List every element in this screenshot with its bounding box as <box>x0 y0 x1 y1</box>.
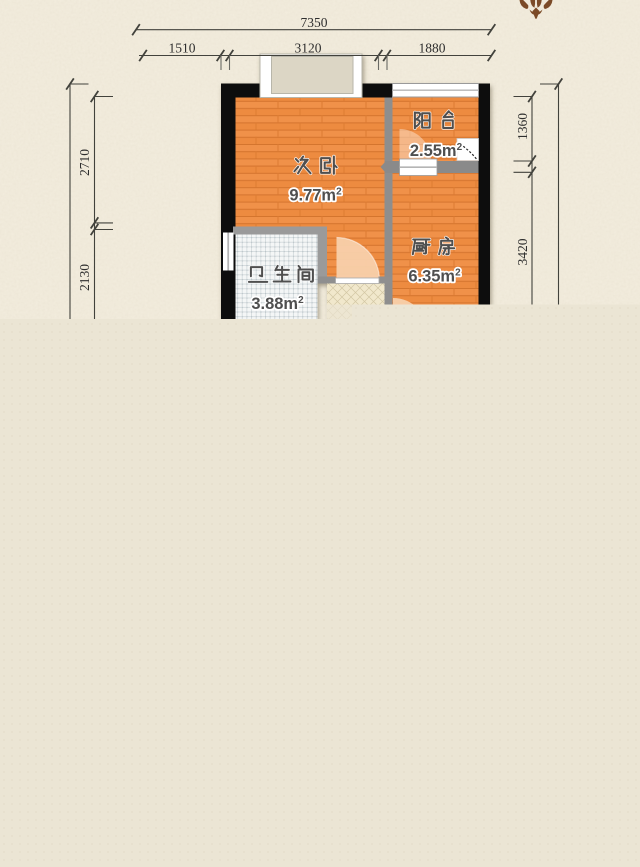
svg-text:3120: 3120 <box>295 41 322 56</box>
svg-text:6.35m2: 6.35m2 <box>408 268 461 286</box>
svg-text:2.55m2: 2.55m2 <box>410 142 463 160</box>
svg-text:1510: 1510 <box>169 41 196 56</box>
svg-text:1880: 1880 <box>419 41 446 56</box>
svg-text:7350: 7350 <box>301 15 328 30</box>
svg-text:3.88m2: 3.88m2 <box>251 295 304 313</box>
svg-text:1360: 1360 <box>515 113 530 140</box>
svg-text:3420: 3420 <box>515 238 530 265</box>
svg-text:2710: 2710 <box>77 149 92 176</box>
svg-text:2130: 2130 <box>77 264 92 291</box>
svg-text:9.77m2: 9.77m2 <box>289 187 342 205</box>
